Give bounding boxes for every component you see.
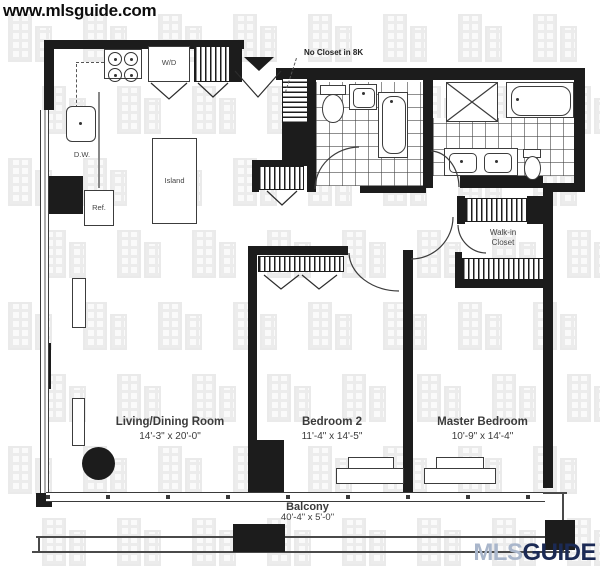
watermark-building-icon — [192, 230, 238, 278]
wall-left-top — [44, 40, 54, 110]
bedroom2-window-unit — [336, 468, 404, 484]
wall-wic-filler — [527, 196, 543, 224]
bathroom2-door-arc — [314, 146, 360, 190]
living-room-label: Living/Dining Room — [90, 416, 250, 428]
watermark-building-icon — [83, 302, 129, 350]
entry-door-swing — [234, 70, 282, 98]
foyer-closet-a-shelving — [282, 78, 308, 124]
walkin-label-line2: Closet — [492, 238, 515, 247]
living-radiator-upper — [72, 278, 86, 328]
cabinet-dashed-line-h — [76, 62, 104, 63]
bathroom2-toilet — [322, 94, 344, 123]
walkin-door-arc — [457, 224, 487, 254]
no-closet-note: No Closet in 8K — [304, 48, 363, 57]
walkin-shelf-top — [465, 198, 527, 222]
window-wall-left — [40, 110, 49, 493]
watermark-building-icon — [533, 446, 579, 494]
kitchen-sink-drain — [79, 122, 82, 125]
wall-wic-jamb-top — [457, 196, 465, 224]
wall-bedroom2-top — [248, 246, 348, 255]
balcony-dims: 40'-4" x 5'-0" — [250, 512, 365, 523]
watermark-building-icon — [117, 230, 163, 278]
masterbath-tub-drain — [516, 98, 519, 101]
master-door-arc — [410, 216, 454, 260]
watermark-building-icon — [492, 374, 538, 422]
watermark-building-icon — [42, 518, 88, 566]
dishwasher-label: D.W. — [62, 150, 102, 159]
watermark-building-icon — [342, 374, 388, 422]
masterbath-sink-right-drain — [495, 160, 498, 163]
hall-closet-door-swing — [197, 82, 229, 98]
bathroom2-sink-faucet — [362, 92, 365, 95]
balcony-rail-upper — [36, 536, 564, 538]
foyer-closet-b-shelving — [258, 166, 304, 190]
watermark-building-icon — [533, 14, 579, 62]
wall-pier-bedroom2 — [252, 440, 284, 495]
masterbath-sink-right — [484, 153, 512, 173]
kitchen-island-label: Island — [152, 176, 197, 185]
wall-top-right — [276, 68, 583, 80]
watermark-building-icon — [267, 374, 313, 422]
mlsguide-logo: MLSGUIDE — [440, 539, 596, 567]
watermark-building-icon — [158, 446, 204, 494]
bedroom2-closet-swing-left — [263, 274, 300, 290]
masterbath-bathtub-basin — [511, 86, 571, 116]
wall-right-bath — [574, 68, 585, 190]
masterbath-sink-left-drain — [460, 160, 463, 163]
master-window-unit — [424, 468, 496, 484]
watermark-building-icon — [383, 14, 429, 62]
bedroom2-closet-swing-right — [301, 274, 338, 290]
bathroom2-bathtub-basin — [382, 96, 406, 154]
watermark-building-icon — [533, 302, 579, 350]
refrigerator-label: Ref. — [84, 203, 114, 212]
master-window-unit-top — [436, 457, 484, 469]
logo-mls-part: MLS — [473, 539, 522, 566]
balcony-planter-center — [233, 524, 285, 552]
watermark-building-icon — [342, 518, 388, 566]
washer-dryer-label: W/D — [148, 58, 190, 67]
walkin-label-line1: Walk-in — [490, 228, 516, 237]
master-bedroom-dims: 10'-9" x 14'-4" — [420, 431, 545, 442]
watermark-building-icon — [458, 302, 504, 350]
stove-burners-icon — [106, 50, 140, 78]
watermark-building-icon — [458, 14, 504, 62]
washer-dryer-door-swing — [150, 82, 188, 100]
living-room-dims: 14'-3" x 20'-0" — [90, 431, 250, 442]
foyer-closet-door-swing — [266, 190, 298, 206]
wall-bedrooms-divider — [403, 250, 413, 495]
masterbath-door-arc — [430, 150, 460, 188]
watermark-building-icon — [567, 374, 600, 422]
masterbath-shower-x-icon — [446, 82, 498, 122]
watermark-building-icon — [192, 374, 238, 422]
counter-edge-line — [98, 92, 100, 188]
bathroom2-tub-drain — [390, 100, 393, 103]
bedroom2-window-unit-top — [348, 457, 394, 469]
living-radiator-lower — [72, 398, 85, 446]
logo-guide-part: GUIDE — [522, 539, 596, 566]
bedroom2-closet-shelving — [258, 256, 344, 272]
watermark-building-icon — [158, 302, 204, 350]
bedroom2-label: Bedroom 2 — [270, 416, 394, 428]
site-watermark-text: www.mlsguide.com — [3, 1, 156, 21]
bedroom2-dims: 11'-4" x 14'-5" — [270, 431, 394, 442]
bedroom2-door-arc — [348, 252, 400, 292]
bathroom2-sink-basin — [353, 88, 375, 108]
watermark-building-icon — [417, 374, 463, 422]
hall-closet-shelving — [194, 46, 230, 82]
walkin-shelf-bottom — [462, 258, 544, 280]
watermark-building-icon — [567, 230, 600, 278]
master-bedroom-label: Master Bedroom — [420, 416, 545, 428]
wall-wic-bottom — [458, 280, 546, 288]
watermark-building-icon — [192, 518, 238, 566]
watermark-building-icon — [117, 518, 163, 566]
masterbath-toilet — [524, 156, 541, 180]
living-column — [82, 447, 115, 480]
floor-plan-image: www.mlsguide.com W/D D.W. — [0, 0, 600, 575]
watermark-building-icon — [117, 374, 163, 422]
balcony-rail-left — [38, 536, 40, 553]
cabinet-dashed-line-v — [76, 64, 77, 108]
watermark-building-icon — [308, 302, 354, 350]
